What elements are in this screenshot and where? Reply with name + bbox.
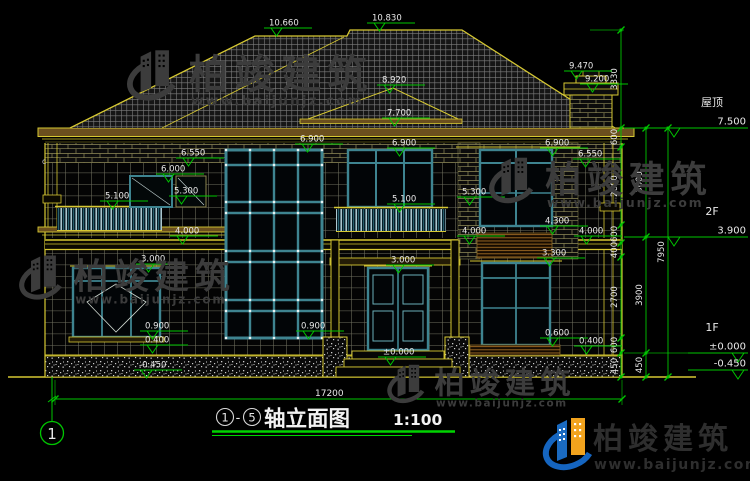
watermark-company: 柏竣建筑 — [545, 158, 712, 201]
level-value: 5.100 — [392, 195, 416, 205]
level-value: 9.200 — [585, 75, 609, 85]
level-value: 0.400 — [145, 336, 169, 346]
watermark-company: 柏竣建筑 — [189, 52, 374, 98]
level-value: 3.000 — [391, 256, 415, 266]
axis-bubble-1: 1 — [41, 377, 64, 445]
storey-name: 1F — [705, 321, 718, 334]
level-value: 0.900 — [301, 322, 325, 332]
window-2f-left-corner — [130, 176, 172, 207]
level-value: 5.300 — [174, 187, 198, 197]
level-value: 0.400 — [579, 337, 603, 347]
storey-level: -0.450 — [688, 359, 748, 380]
level-value: 6.550 — [181, 149, 205, 159]
level-value: 9.470 — [569, 62, 593, 72]
stray-c-mark: c — [42, 157, 46, 166]
level-value: 4.000 — [462, 227, 486, 237]
level-value: 5.100 — [105, 192, 129, 202]
title-name: 轴立面图 — [264, 406, 350, 432]
level-value: 8.920 — [382, 76, 406, 86]
title-axis-from: 1 — [221, 411, 228, 425]
dim-value: 400 — [610, 242, 620, 258]
level-value: 0.600 — [545, 329, 569, 339]
level-marker: 10.830 — [367, 14, 415, 32]
window-2f-center — [348, 150, 432, 207]
level-value: 7.700 — [387, 109, 411, 119]
storey-elevation: -0.450 — [714, 359, 746, 370]
level-value: 10.660 — [269, 19, 299, 29]
level-marker: 10.660 — [264, 19, 312, 37]
storey-level: 1F±0.000 — [688, 321, 748, 362]
level-value: 4.000 — [579, 227, 603, 237]
storey-elevation: 7.500 — [717, 117, 746, 128]
cad-elevation-screenshot: c 33306002600600400270060045036003900450… — [0, 0, 750, 481]
level-value: 3.300 — [542, 249, 566, 259]
level-value: 0.900 — [145, 322, 169, 332]
right-level-labels: 屋顶7.5002F3.9001F±0.000-0.450 — [624, 96, 748, 379]
dim-value: 600 — [610, 337, 620, 353]
level-value: -0.450 — [139, 361, 166, 371]
title-scale: 1:100 — [393, 411, 443, 429]
level-value: ±0.000 — [383, 348, 414, 358]
level-value: 6.900 — [392, 139, 416, 149]
window-apron-grille — [470, 345, 560, 355]
window-1f-right — [470, 263, 560, 355]
logo-company-name: 柏竣建筑 — [593, 422, 733, 457]
axis-number: 1 — [47, 425, 57, 443]
company-logo: 柏竣建筑 www.baijunjz.com — [540, 418, 750, 474]
watermark-url: www.baijunjz.com — [75, 292, 227, 306]
dim-value: 600 — [610, 129, 620, 145]
level-value: 4.000 — [175, 227, 199, 237]
logo-company-url: www.baijunjz.com — [594, 457, 750, 473]
entrance-double-door — [368, 268, 428, 350]
level-value: 5.300 — [462, 188, 486, 198]
dim-value: 450 — [610, 358, 620, 374]
watermark-url: www.baijunjz.com — [191, 93, 364, 109]
watermark-url: www.baijunjz.com — [436, 397, 568, 409]
dim-value: 7950 — [657, 241, 667, 263]
title-axis-to: 5 — [248, 411, 255, 425]
storey-name: 屋顶 — [701, 96, 723, 109]
storey-elevation: ±0.000 — [709, 342, 746, 353]
louver-spandrel — [477, 233, 552, 258]
watermark: 柏竣建筑www.baijunjz.com — [385, 365, 575, 410]
dim-value: 3900 — [635, 284, 645, 306]
window-central-tall — [225, 149, 323, 339]
overall-width-value: 17200 — [315, 389, 344, 399]
drawing-title: 1 - 5 轴立面图 1:100 — [212, 406, 455, 436]
watermark-url: www.baijunjz.com — [547, 196, 703, 210]
level-value: 6.900 — [545, 139, 569, 149]
storey-elevation: 3.900 — [717, 226, 746, 237]
dim-value: 2700 — [610, 286, 620, 308]
logo-mark — [540, 418, 597, 474]
elevation-canvas: c 33306002600600400270060045036003900450… — [0, 0, 750, 481]
center-balcony-railing — [334, 208, 448, 232]
level-value: 10.830 — [372, 14, 402, 24]
watermark-company: 柏竣建筑 — [434, 366, 575, 402]
level-value: 6.000 — [161, 165, 185, 175]
title-separator: - — [236, 411, 241, 426]
storey-name: 2F — [705, 205, 718, 218]
left-balcony-railing — [55, 207, 164, 231]
dim-value: 450 — [635, 357, 645, 373]
level-value: 6.900 — [300, 135, 324, 145]
level-value: 4.300 — [545, 217, 569, 227]
dim-value: 600 — [610, 226, 620, 242]
